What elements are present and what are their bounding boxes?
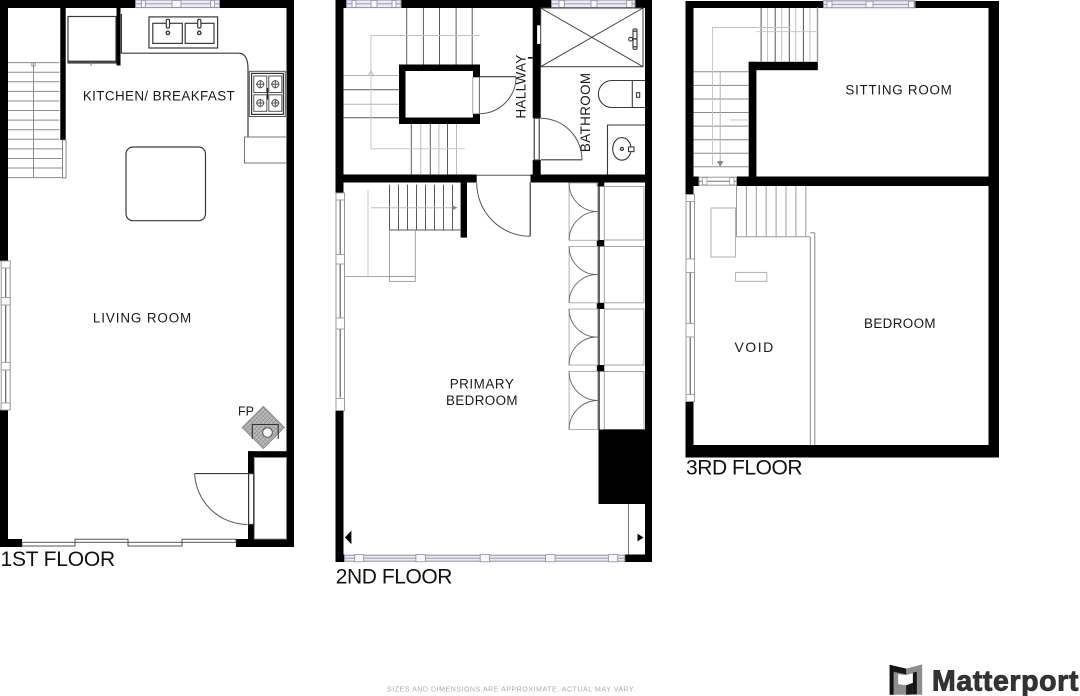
- svg-text:BATHROOM: BATHROOM: [578, 73, 593, 153]
- svg-text:VOID: VOID: [734, 339, 774, 355]
- svg-text:SIZES AND DIMENSIONS ARE APPRO: SIZES AND DIMENSIONS ARE APPROXIMATE, AC…: [387, 686, 636, 693]
- svg-text:3RD FLOOR: 3RD FLOOR: [686, 456, 802, 479]
- svg-text:HALLWAY: HALLWAY: [514, 54, 529, 118]
- svg-text:PRIMARY: PRIMARY: [450, 377, 515, 392]
- svg-text:1ST FLOOR: 1ST FLOOR: [1, 548, 116, 571]
- svg-text:Matterport: Matterport: [932, 665, 1079, 696]
- svg-text:BEDROOM: BEDROOM: [864, 316, 936, 331]
- svg-text:2ND FLOOR: 2ND FLOOR: [336, 565, 452, 588]
- svg-text:SITTING ROOM: SITTING ROOM: [845, 82, 952, 97]
- svg-text:LIVING ROOM: LIVING ROOM: [93, 311, 192, 326]
- svg-text:FP: FP: [238, 405, 254, 419]
- svg-text:KITCHEN/ BREAKFAST: KITCHEN/ BREAKFAST: [83, 89, 235, 104]
- svg-text:BEDROOM: BEDROOM: [446, 393, 518, 408]
